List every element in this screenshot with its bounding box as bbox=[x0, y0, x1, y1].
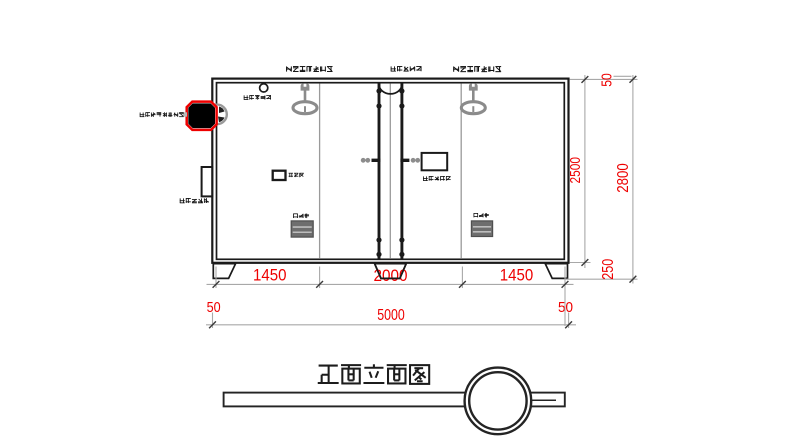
svg-text:50: 50 bbox=[207, 299, 221, 316]
svg-text:2500: 2500 bbox=[567, 157, 584, 184]
svg-text:250: 250 bbox=[600, 259, 617, 280]
svg-text:50: 50 bbox=[598, 73, 615, 87]
svg-text:1450: 1450 bbox=[500, 266, 534, 284]
svg-text:5000: 5000 bbox=[377, 307, 405, 324]
svg-text:1450: 1450 bbox=[253, 266, 287, 284]
svg-text:2000: 2000 bbox=[374, 267, 408, 285]
svg-text:2800: 2800 bbox=[615, 163, 632, 193]
